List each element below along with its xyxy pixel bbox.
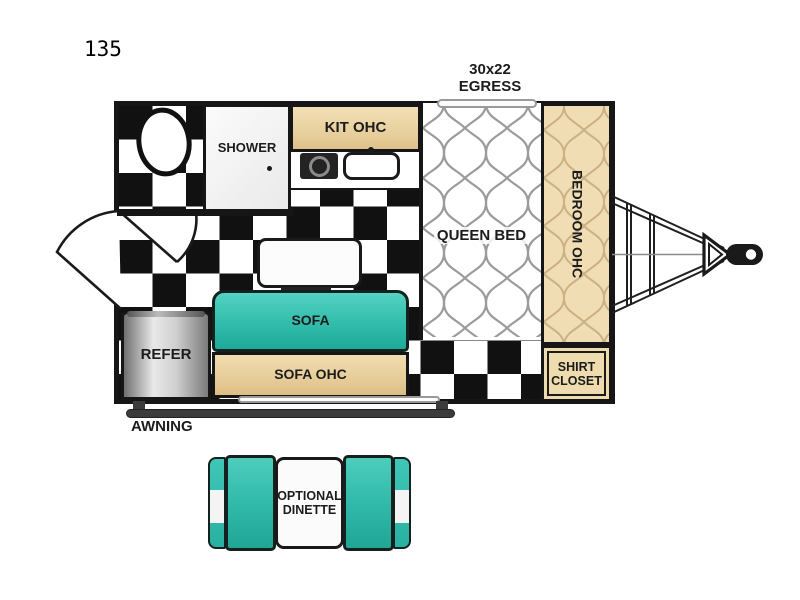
trailer-hitch-icon	[610, 185, 775, 325]
shower-door-handle-dot	[267, 166, 272, 171]
stove-burner-icon	[309, 156, 330, 177]
dinette-seat-back-left	[208, 457, 226, 549]
dinette-seat-back-right	[393, 457, 411, 549]
shower-room: SHOWER	[203, 104, 291, 212]
shower-label: SHOWER	[206, 141, 288, 156]
dinette-bench-left	[225, 455, 276, 551]
table	[257, 238, 362, 288]
dinette-seat-back-left-cushion	[210, 490, 224, 523]
queen-bed-label: QUEEN BED	[421, 228, 542, 245]
sofa-label: SOFA	[291, 313, 329, 329]
queen-bed-pattern	[423, 103, 544, 337]
sofa: SOFA	[212, 290, 409, 352]
optional-dinette-label: OPTIONAL DINETTE	[277, 489, 342, 517]
dinette-bench-right	[343, 455, 394, 551]
queen-bed	[419, 103, 544, 340]
bedroom-ohc-label: BEDROOM OHC	[541, 103, 612, 345]
egress-window-label: 30x22 EGRESS	[420, 62, 560, 96]
awning-label: AWNING	[131, 419, 193, 436]
shirt-closet: SHIRT CLOSET	[541, 345, 612, 402]
faucet-dot-icon	[368, 147, 374, 153]
refrigerator-top-cap	[127, 311, 205, 317]
stove-icon	[300, 153, 338, 179]
sink-icon	[343, 152, 400, 180]
dinette-table: OPTIONAL DINETTE	[275, 457, 344, 549]
bottom-wall-window	[238, 396, 440, 403]
egress-window	[437, 99, 537, 108]
awning-bar	[126, 409, 455, 418]
kit-ohc-label: KIT OHC	[325, 120, 387, 137]
shirt-closet-label: SHIRT CLOSET	[551, 360, 602, 388]
door-swing-icon	[40, 198, 215, 318]
floorplan-stage: 135 30x22 EGRESS SHOWER KIT OHC	[0, 0, 800, 600]
refrigerator: REFER	[121, 311, 211, 400]
kitchen-overhead-cabinet: KIT OHC	[290, 104, 421, 152]
toilet-icon	[132, 105, 196, 179]
refer-label: REFER	[141, 347, 192, 364]
dinette-seat-back-right-cushion	[395, 490, 409, 523]
sofa-overhead-cabinet: SOFA OHC	[212, 352, 409, 398]
sofa-ohc-label: SOFA OHC	[274, 367, 347, 383]
model-number-label: 135	[84, 37, 122, 61]
